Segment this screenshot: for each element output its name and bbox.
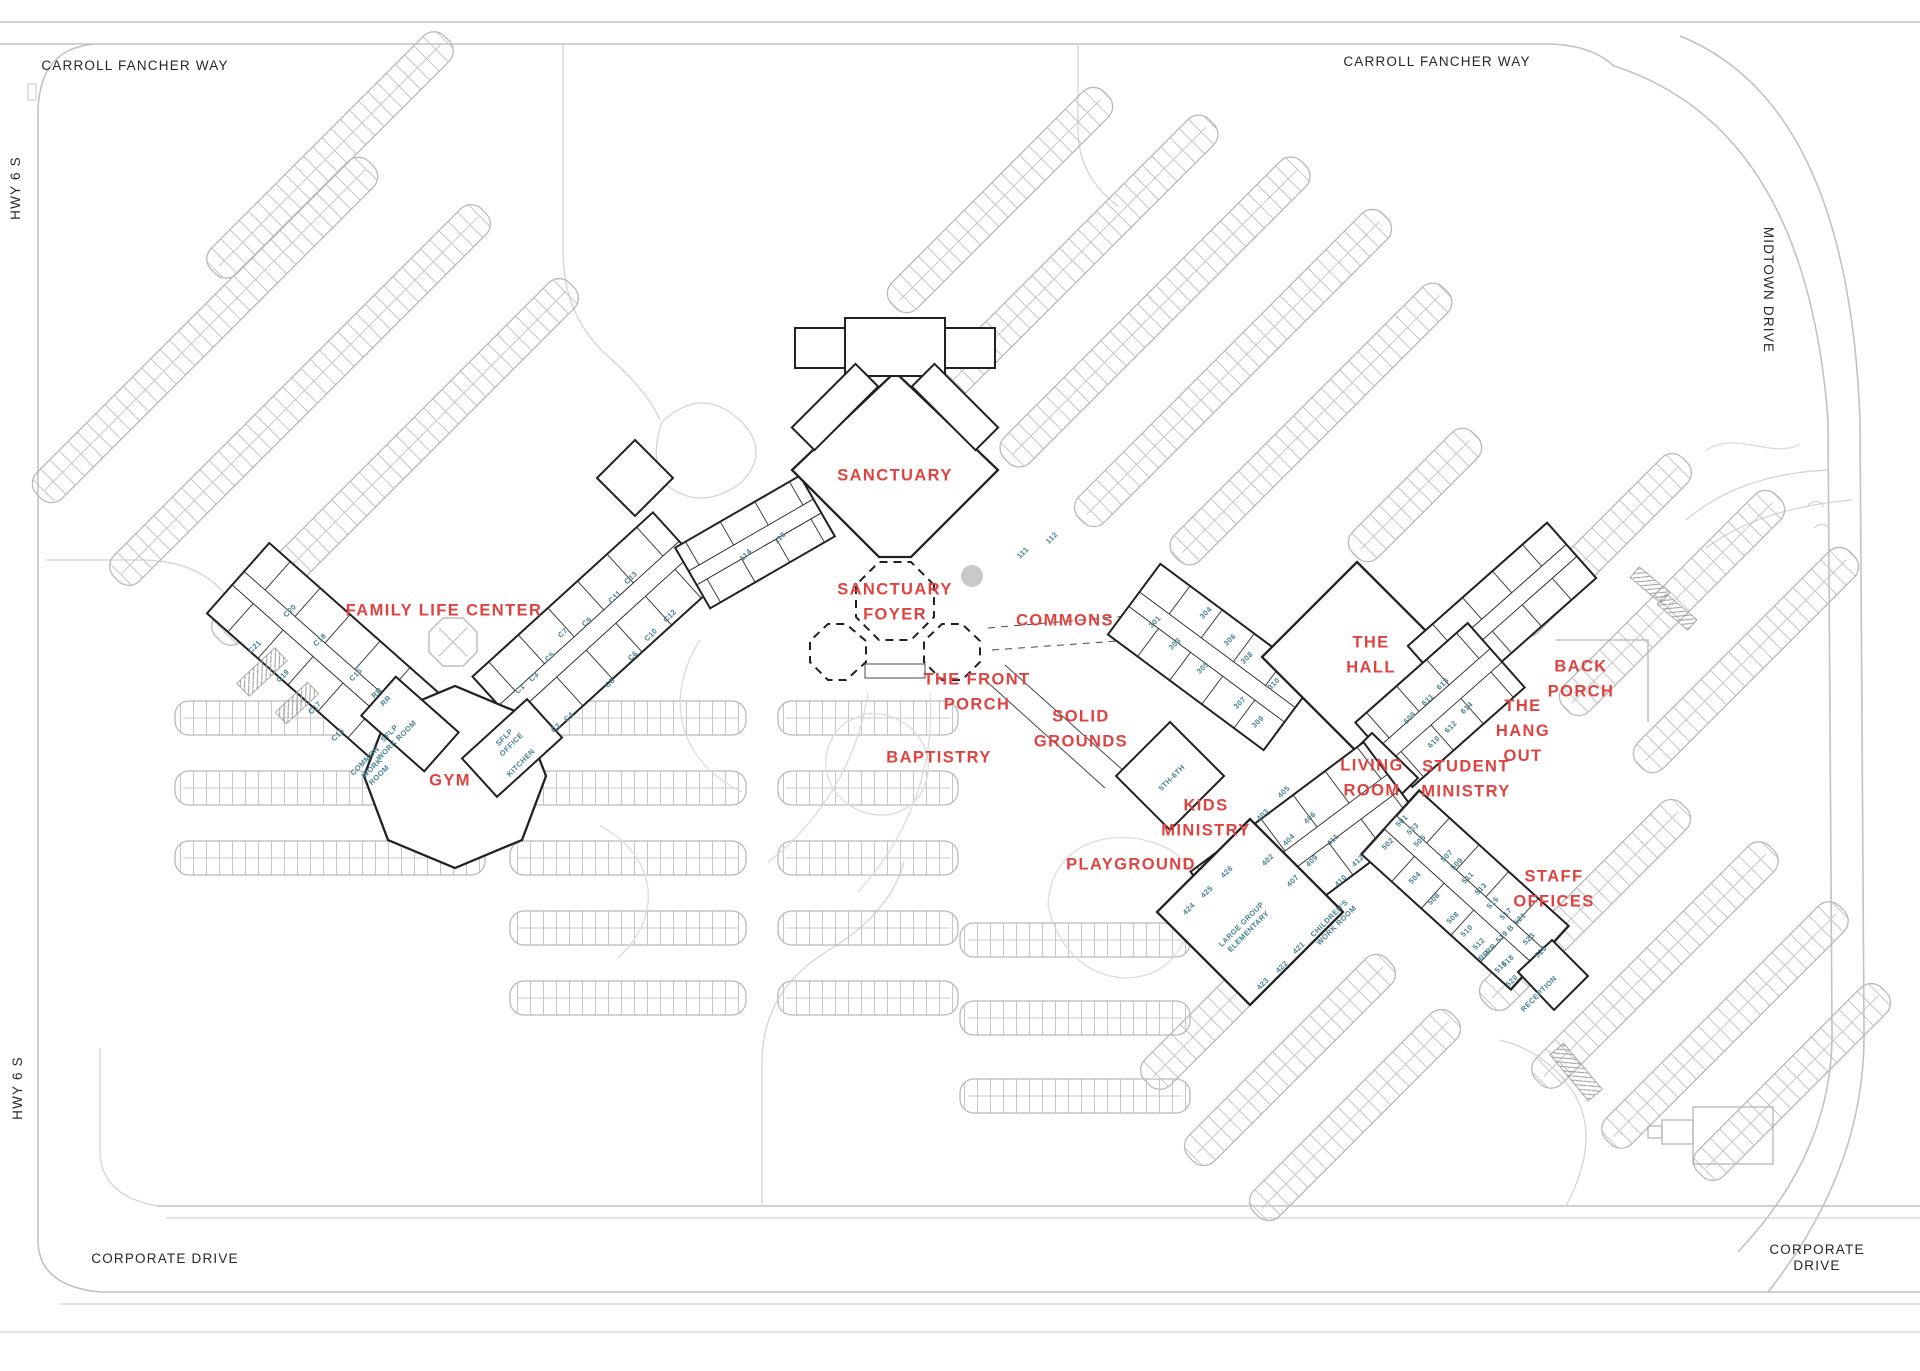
area-label-living-room: LIVING ROOM xyxy=(1340,753,1403,803)
street-label-corporate-drive-east: CORPORATE DRIVE xyxy=(1766,1242,1869,1274)
area-label-playground: PLAYGROUND xyxy=(1066,853,1196,878)
room-label-room-612: 612 xyxy=(1443,719,1460,736)
area-label-back-porch: BACK PORCH xyxy=(1548,654,1615,704)
room-label-room-515: 515 xyxy=(1485,895,1502,912)
room-label-c7: C7 xyxy=(556,626,570,640)
room-label-room-305: 305 xyxy=(1195,660,1212,677)
room-label-c2: C2 xyxy=(549,721,563,735)
street-label-hwy-6-s-north: HWY 6 S xyxy=(8,156,24,220)
area-label-the-hang-out: THE HANG OUT xyxy=(1496,694,1550,768)
area-label-the-hall: THE HALL xyxy=(1346,630,1396,680)
room-label-c5: C5 xyxy=(543,650,557,664)
room-label-room-520: 520 xyxy=(1504,973,1521,990)
room-label-sflp-office: SFLP OFFICE xyxy=(491,724,526,759)
room-label-c10: C10 xyxy=(642,626,659,643)
room-label-room-423: 423 xyxy=(1255,976,1272,993)
room-label-room-301: 301 xyxy=(1147,614,1164,631)
area-label-sanctuary: SANCTUARY xyxy=(837,464,953,489)
room-label-room-309: 309 xyxy=(1250,714,1267,731)
room-label-room-504: 504 xyxy=(1407,870,1424,887)
room-label-c17: C17 xyxy=(306,699,323,716)
room-label-room-506: 506 xyxy=(1426,891,1443,908)
room-label-room-508: 508 xyxy=(1445,910,1462,927)
room-label-room-114: 114 xyxy=(738,547,754,563)
area-label-staff-offices: STAFF OFFICES xyxy=(1513,864,1594,914)
room-label-room-609: 609 xyxy=(1402,710,1419,727)
room-label-room-412: 412 xyxy=(1350,853,1367,870)
room-label-childrens-work-room: CHILDREN'S WORK ROOM xyxy=(1307,896,1358,947)
room-label-reception: RECEPTION xyxy=(1519,974,1559,1014)
room-label-room-111: 111 xyxy=(1015,545,1031,561)
room-label-room-513: 513 xyxy=(1473,881,1490,898)
room-label-room-502: 502 xyxy=(1380,836,1397,853)
room-label-c11: C11 xyxy=(606,588,623,605)
room-label-room-611: 611 xyxy=(1420,692,1436,708)
room-label-c6: C6 xyxy=(626,649,640,663)
room-label-room-426: 426 xyxy=(1219,864,1236,881)
room-label-room-307: 307 xyxy=(1232,695,1249,712)
area-label-solid-grounds: SOLID GROUNDS xyxy=(1034,704,1128,754)
room-label-room-410: 410 xyxy=(1333,873,1350,890)
room-label-room-425: 425 xyxy=(1199,884,1216,901)
room-label-room-511: 511 xyxy=(1460,870,1476,886)
room-label-room-505: 505 xyxy=(1412,833,1429,850)
room-label-room-404: 404 xyxy=(1281,832,1298,849)
room-label-c8: C8 xyxy=(603,676,617,690)
street-label-midtown-drive: MIDTOWN DRIVE xyxy=(1760,227,1776,353)
room-label-c3: C3 xyxy=(527,670,541,684)
room-label-c20: C20 xyxy=(281,602,298,619)
room-label-c12: C12 xyxy=(661,607,678,624)
room-label-room-407: 407 xyxy=(1285,873,1302,890)
street-label-carroll-fancher-way-west: CARROLL FANCHER WAY xyxy=(41,58,228,74)
room-label-c19: C19 xyxy=(274,667,291,684)
room-label-room-308: 308 xyxy=(1239,650,1256,667)
room-label-c9: C9 xyxy=(580,615,594,629)
room-label-room-613: 613 xyxy=(1435,676,1452,693)
room-label-room-525: 525 xyxy=(1533,944,1550,961)
street-label-carroll-fancher-way-east: CARROLL FANCHER WAY xyxy=(1343,54,1530,70)
campus-map: CARROLL FANCHER WAYCARROLL FANCHER WAYMI… xyxy=(0,0,1920,1371)
room-label-room-406: 406 xyxy=(1302,810,1319,827)
room-label-room-424: 424 xyxy=(1181,901,1198,918)
street-label-hwy-6-s-south: HWY 6 S xyxy=(10,1056,26,1120)
room-label-room-519b: 519 B xyxy=(1494,923,1516,945)
room-label-room-402: 402 xyxy=(1260,852,1277,869)
room-label-room-523: 523 xyxy=(1521,931,1538,948)
area-label-the-front-porch: THE FRONT PORCH xyxy=(923,667,1030,717)
street-label-corporate-drive-west: CORPORATE DRIVE xyxy=(91,1251,239,1267)
room-label-large-group-elementary: LARGE GROUP ELEMENTARY xyxy=(1217,900,1273,956)
room-label-room-421: 421 xyxy=(1291,940,1308,957)
room-label-c1: C1 xyxy=(513,682,527,696)
room-label-room-306: 306 xyxy=(1222,632,1239,649)
area-label-family-life-center: FAMILY LIFE CENTER xyxy=(346,599,543,624)
room-label-room-411: 411 xyxy=(1325,832,1341,848)
room-label-room-403: 403 xyxy=(1255,807,1272,824)
area-label-sanctuary-foyer: SANCTUARY FOYER xyxy=(837,577,953,627)
room-label-c21: C21 xyxy=(246,638,263,655)
room-label-room-610: 610 xyxy=(1426,734,1443,751)
room-label-room-310: 310 xyxy=(1266,676,1283,693)
room-label-room-614: 614 xyxy=(1459,700,1476,717)
room-label-room-112: 112 xyxy=(1044,530,1060,546)
labels-layer: CARROLL FANCHER WAYCARROLL FANCHER WAYMI… xyxy=(0,0,1920,1371)
area-label-commons: COMMONS xyxy=(1016,609,1114,634)
room-label-c18: C18 xyxy=(311,631,328,648)
room-label-room-303: 303 xyxy=(1167,636,1184,653)
area-label-gym: GYM xyxy=(429,769,471,794)
room-label-c4: C4 xyxy=(562,710,576,724)
room-label-c16: C16 xyxy=(347,666,364,683)
room-label-room-409: 409 xyxy=(1304,853,1321,870)
room-label-room-405: 405 xyxy=(1276,784,1293,801)
area-label-baptistry: BAPTISTRY xyxy=(886,746,992,771)
room-label-room-422: 422 xyxy=(1274,959,1291,976)
room-label-c13: C13 xyxy=(622,569,639,586)
room-label-room-113: 113 xyxy=(772,530,788,546)
room-label-room-5th-6th: 5TH-6TH xyxy=(1157,763,1188,794)
area-label-kids-ministry: KIDS MINISTRY xyxy=(1161,793,1250,843)
room-label-room-304: 304 xyxy=(1198,605,1215,622)
room-label-room-510: 510 xyxy=(1459,923,1476,940)
room-label-c15: C15 xyxy=(329,726,346,743)
